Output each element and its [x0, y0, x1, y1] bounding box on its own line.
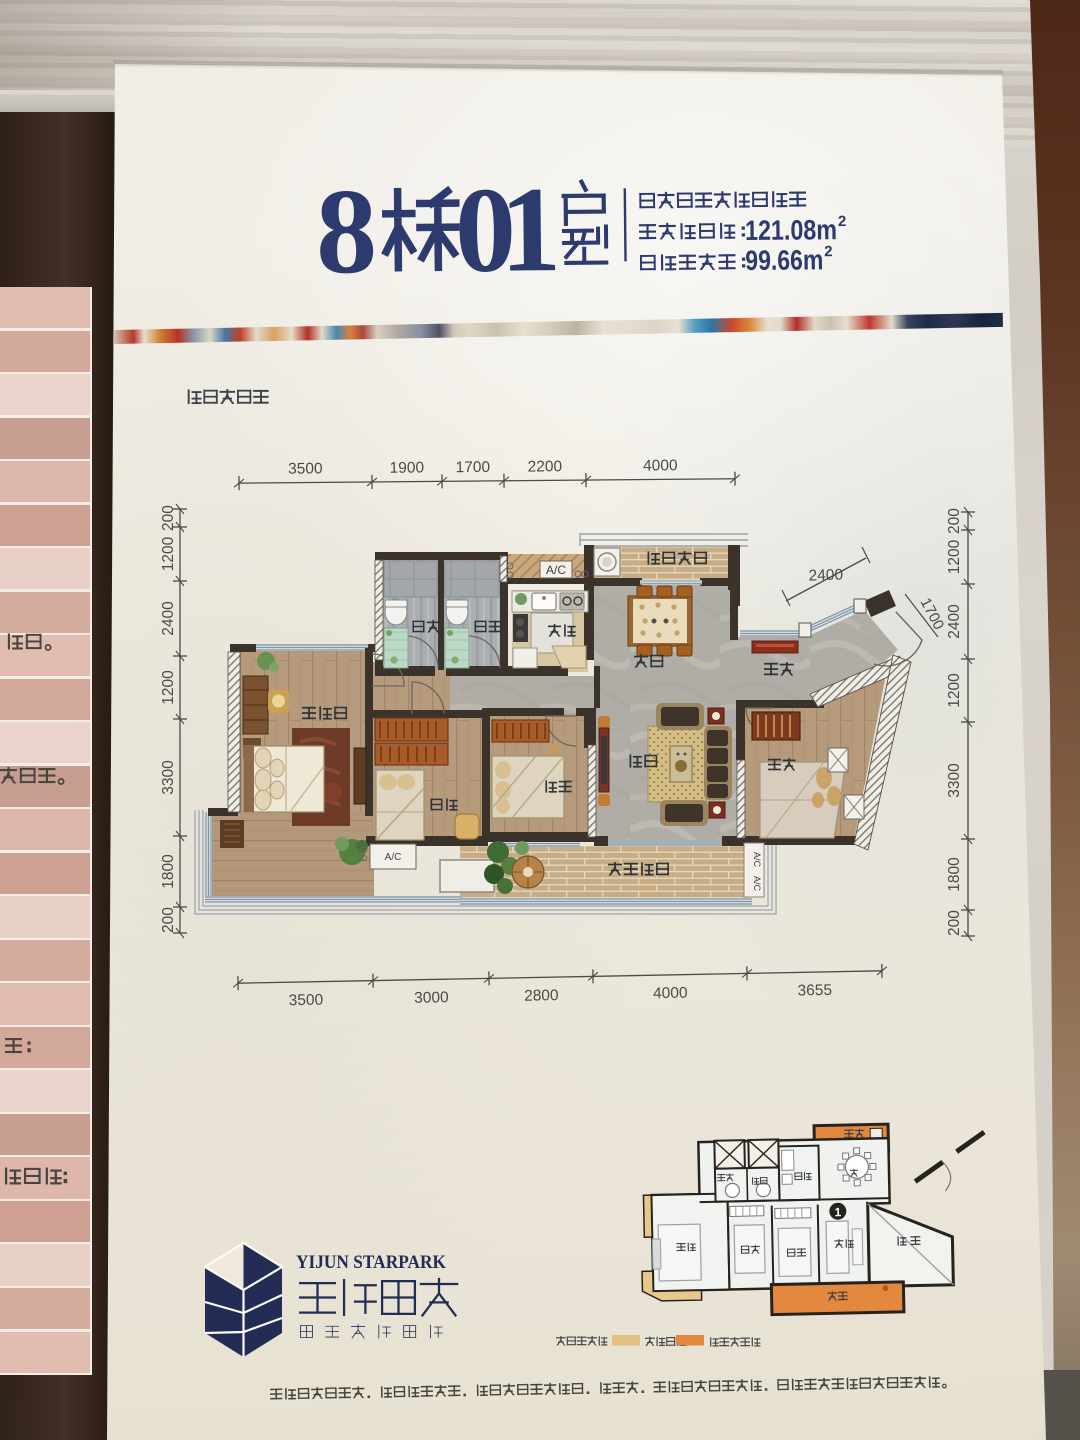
svg-text:200: 200	[946, 508, 963, 534]
svg-text:1200: 1200	[160, 670, 177, 705]
svg-text:1: 1	[834, 1205, 841, 1219]
svg-text:1700: 1700	[456, 459, 491, 476]
svg-text:2800: 2800	[524, 987, 559, 1005]
svg-text:8: 8	[315, 164, 377, 300]
svg-text:A/C: A/C	[752, 876, 762, 892]
svg-text:99.66m: 99.66m	[745, 244, 823, 276]
svg-text:4000: 4000	[643, 457, 678, 474]
svg-text:2400: 2400	[946, 604, 963, 639]
svg-text:1700: 1700	[917, 595, 948, 632]
svg-text:2: 2	[824, 243, 833, 260]
svg-text:A/C: A/C	[546, 563, 566, 577]
svg-text:1200: 1200	[160, 536, 177, 571]
svg-text:3655: 3655	[797, 982, 832, 1000]
svg-text:3500: 3500	[288, 992, 323, 1010]
svg-text:2200: 2200	[528, 458, 563, 475]
svg-text:2: 2	[838, 213, 847, 230]
svg-text:4000: 4000	[653, 985, 688, 1003]
svg-text:3500: 3500	[288, 460, 323, 477]
svg-text:1200: 1200	[946, 539, 963, 574]
svg-text:121.08m: 121.08m	[745, 214, 837, 246]
svg-text:1: 1	[499, 162, 561, 298]
svg-text:YIJUN STARPARK: YIJUN STARPARK	[296, 1252, 446, 1273]
svg-text:2400: 2400	[808, 566, 843, 584]
svg-text:1200: 1200	[946, 673, 963, 708]
svg-text:1900: 1900	[390, 459, 425, 476]
svg-text:2400: 2400	[160, 601, 177, 636]
svg-text:200: 200	[946, 910, 963, 936]
svg-text:A/C: A/C	[752, 852, 762, 868]
svg-text:1800: 1800	[160, 854, 177, 889]
svg-text:3300: 3300	[160, 760, 177, 795]
svg-text:3300: 3300	[946, 763, 963, 798]
svg-text:1800: 1800	[946, 857, 963, 892]
svg-text:200: 200	[160, 907, 177, 933]
svg-text:200: 200	[160, 505, 177, 531]
svg-text:A/C: A/C	[385, 852, 402, 863]
svg-text:3000: 3000	[414, 989, 449, 1007]
